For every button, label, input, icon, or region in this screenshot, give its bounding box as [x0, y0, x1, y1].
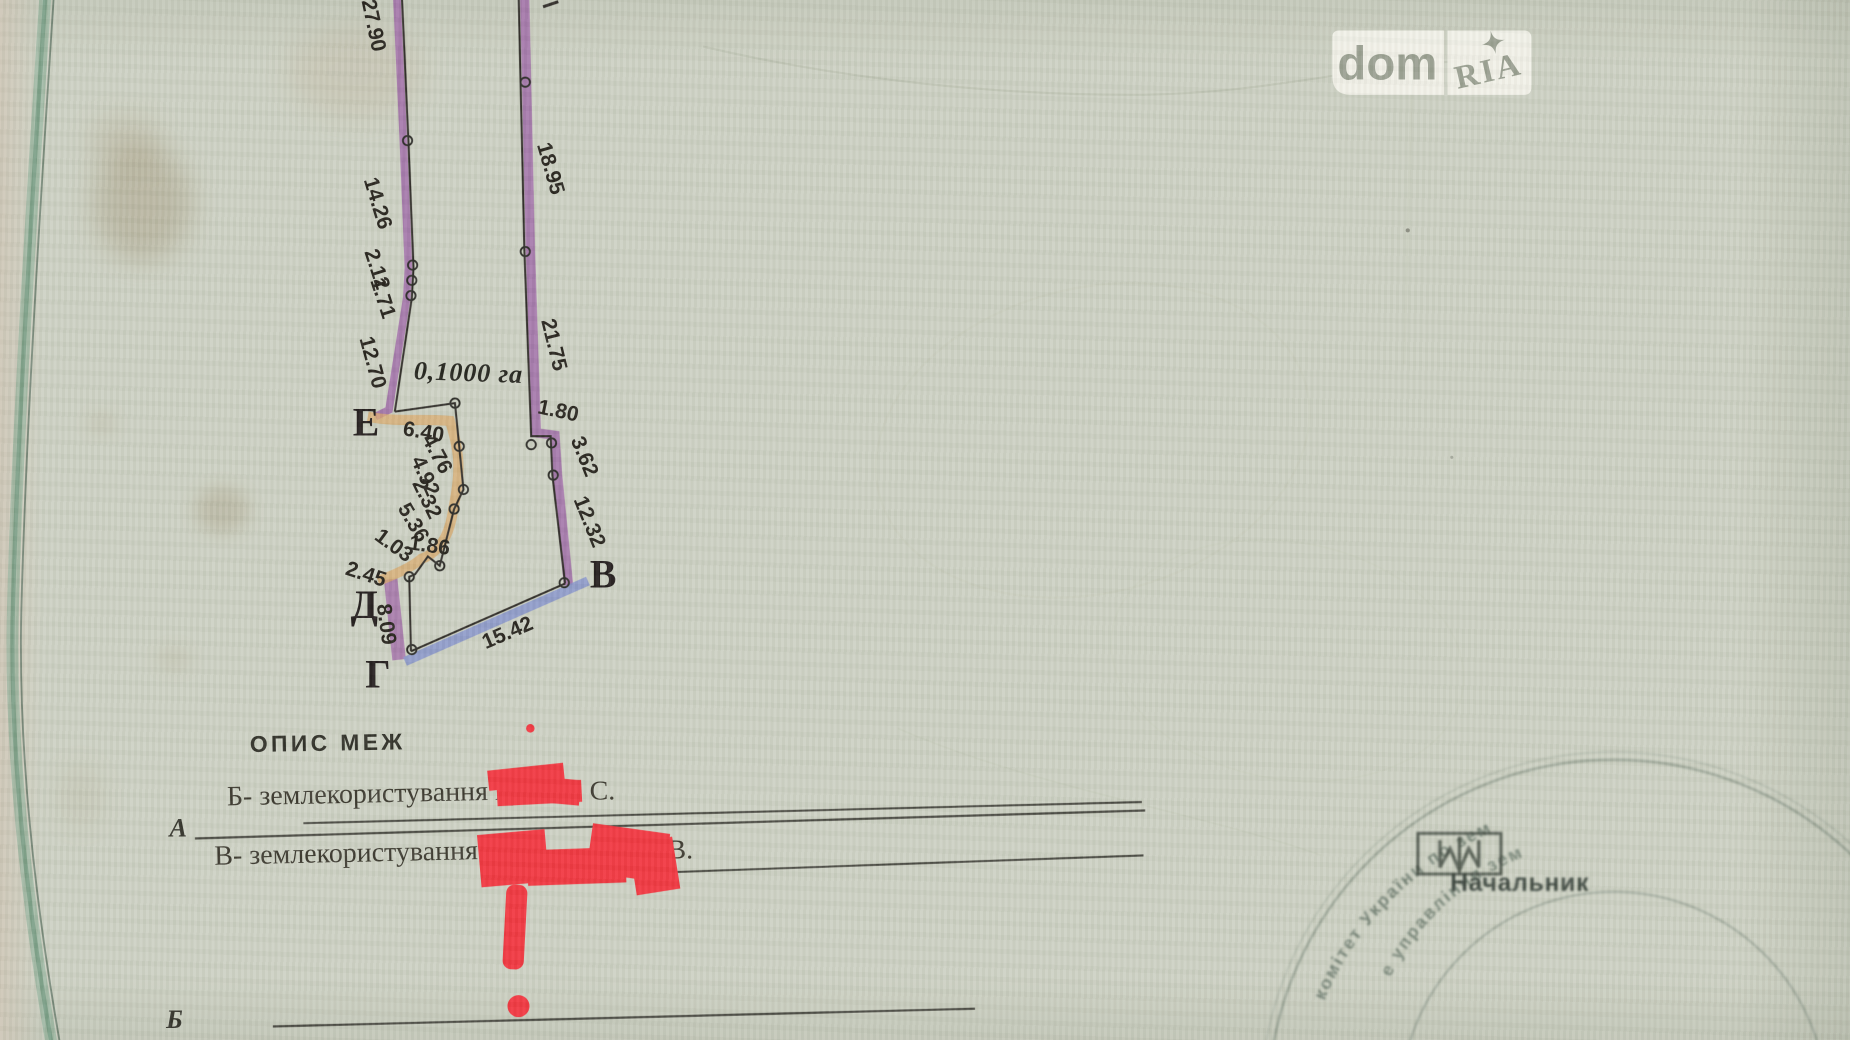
measurement-label: 1.71: [365, 275, 400, 321]
line-v-text: В- землекористування гр.: [214, 834, 518, 871]
redaction-speck: [526, 724, 534, 732]
point-label-e: Е: [353, 400, 380, 444]
measurement-label: 18.95: [532, 140, 569, 197]
measurement-label: 1.86: [408, 531, 452, 560]
measurement-label: 12.70: [355, 334, 391, 391]
stamp-arc-text-outer: комітет України по зем: [1309, 817, 1495, 1003]
description-heading: ОПИС МЕЖ: [250, 728, 406, 757]
rule-b-underline: [273, 1009, 975, 1027]
watermark-ghost: [898, 728, 1321, 855]
top-cut-mark: [543, 2, 558, 7]
label-b: Б: [165, 1005, 183, 1034]
paper-stain: [60, 764, 101, 828]
measurement-label: 21.75: [536, 316, 571, 373]
point-label-g: Г: [365, 653, 390, 697]
scanned-land-act-page: 27.90 14.26 2.12 1.71 12.70 6.40 4.76 4.…: [0, 0, 1850, 1040]
ink-speck: [1450, 456, 1453, 459]
stamp-inner-ring: [1400, 892, 1827, 1040]
stamp-arc-text-inner: е управління зем: [1376, 841, 1526, 979]
paper-stain: [157, 648, 191, 670]
watermark-ghost: [842, 239, 1343, 641]
right-boundary-purple-highlight: [524, 0, 568, 585]
green-border-band: [12, 0, 52, 1040]
dom-text: dom: [1337, 38, 1437, 91]
measurement-label: 1.80: [536, 395, 581, 426]
line-b-suffix: С.: [590, 775, 616, 806]
area-label: 0,1000 га: [413, 356, 523, 389]
label-a: А: [168, 814, 188, 843]
ink-speck: [1406, 228, 1410, 232]
line-b-text: Б- землекористування гр.: [227, 775, 528, 812]
domria-watermark: dom RIA: [1332, 26, 1531, 97]
paper-stain: [88, 414, 115, 433]
stamp-title: Начальник: [1450, 870, 1589, 897]
point-label-d: Д: [351, 583, 378, 627]
land-plot-scan: 27.90 14.26 2.12 1.71 12.70 6.40 4.76 4.…: [0, 0, 1850, 1040]
watermark-ghost: [1092, 513, 1483, 808]
paper-artifacts: [12, 0, 1483, 1040]
redaction-marks: [477, 724, 680, 1017]
point-label-v: В: [590, 553, 617, 597]
measurement-label: 3.62: [566, 433, 603, 480]
vertex-marker: [527, 440, 536, 449]
paper-stain: [90, 115, 161, 169]
redaction-mark-line-v: [477, 823, 680, 1017]
measurement-label: 14.26: [359, 175, 396, 232]
paper-stain: [195, 487, 249, 533]
official-stamp: комітет України по зем е управління зем …: [1260, 752, 1850, 1040]
measurement-label: 12.32: [569, 493, 610, 551]
redaction-mark-line-b: [487, 763, 582, 807]
